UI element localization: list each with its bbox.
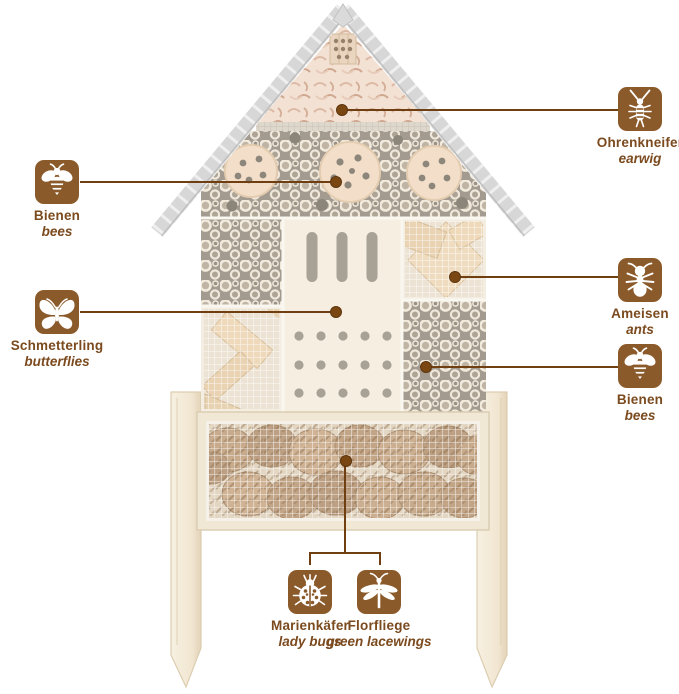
label-ohrenkneifer: Ohrenkneifer earwig <box>585 87 679 167</box>
bee-icon <box>618 344 662 388</box>
callout-line-bottom-stem <box>344 466 346 553</box>
ant-icon <box>618 258 662 302</box>
callout-dot-bottom <box>340 455 352 467</box>
callout-line-bracket-left <box>309 552 311 565</box>
product-infographic: Ohrenkneifer earwig Bienen bees <box>0 0 679 694</box>
butterfly-icon <box>35 290 79 334</box>
label-en: bees <box>585 409 679 424</box>
bee-tube-band <box>201 131 486 218</box>
label-bienen-left: Bienen bees <box>2 160 112 240</box>
left-mesh-wood-section <box>201 306 283 412</box>
label-de: Bienen <box>585 393 679 408</box>
callout-dot-schmetterling <box>330 306 342 318</box>
label-bienen-right: Bienen bees <box>585 344 679 424</box>
right-bamboo-section <box>402 300 486 412</box>
callout-dot-ohrenkneifer <box>336 104 348 116</box>
lacewing-icon <box>357 570 401 614</box>
callout-dot-bienen-left <box>330 176 342 188</box>
pine-cone-box <box>194 412 500 530</box>
label-en: earwig <box>585 152 679 167</box>
callout-line-ohrenkneifer <box>347 109 618 111</box>
bee-icon <box>35 160 79 204</box>
label-de: Ohrenkneifer <box>585 136 679 151</box>
label-de: Schmetterling <box>2 339 112 354</box>
callout-line-bienen-left <box>80 181 332 183</box>
label-de: Florfliege <box>318 619 440 634</box>
left-bamboo-section <box>201 218 283 306</box>
label-florfliege: Florfliege green lacewings <box>318 570 440 650</box>
label-ameisen: Ameisen ants <box>585 258 679 338</box>
label-en: ants <box>585 323 679 338</box>
label-en: butterflies <box>2 355 112 370</box>
callout-line-bottom-bracket <box>309 552 381 554</box>
label-en: bees <box>2 225 112 240</box>
callout-line-bracket-right <box>379 552 381 565</box>
right-mesh-wood-section <box>397 214 487 300</box>
butterfly-board <box>283 218 402 412</box>
label-de: Ameisen <box>585 307 679 322</box>
earwig-icon <box>618 87 662 131</box>
label-schmetterling: Schmetterling butterflies <box>2 290 112 370</box>
callout-line-schmetterling <box>80 311 332 313</box>
callout-dot-bienen-right <box>420 361 432 373</box>
drilled-log-discs <box>225 142 461 202</box>
callout-dot-ameisen <box>449 271 461 283</box>
label-en: green lacewings <box>318 635 440 650</box>
label-de: Bienen <box>2 209 112 224</box>
